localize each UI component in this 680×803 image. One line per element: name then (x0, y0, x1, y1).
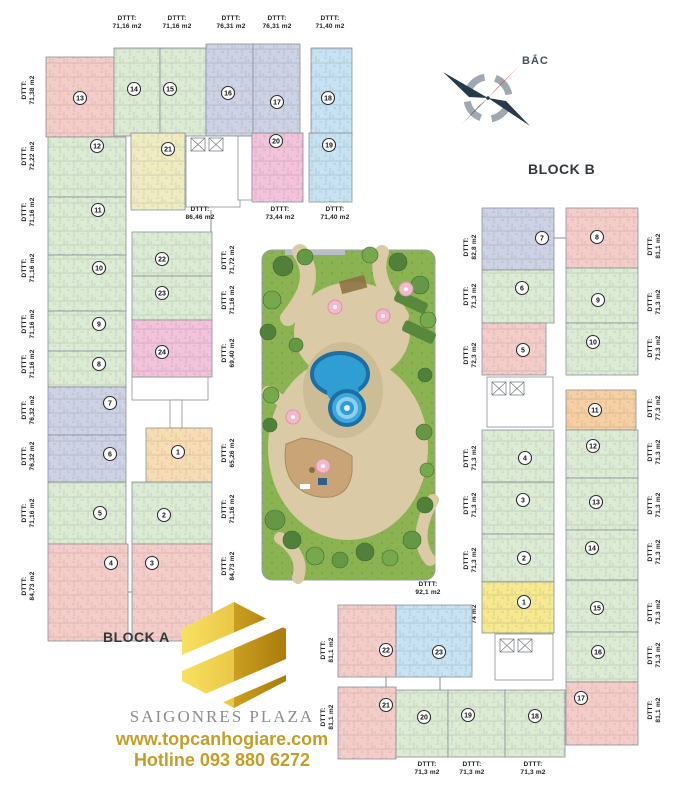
unit-b13: 13DTTT:71,3 m2 (566, 478, 662, 530)
unit-area-label: DTTT:65,26 m2 (221, 438, 236, 467)
unit-area-label: DTTT:86,46 m2 (185, 206, 214, 221)
unit-a22: 22DTTT:71,72 m2 (132, 232, 236, 276)
service-core (495, 634, 553, 680)
unit-number: 1 (522, 599, 526, 606)
unit-floorplan-texture (566, 530, 638, 580)
unit-floorplan-texture (505, 690, 565, 757)
unit-a24: 24DTTT:69,40 m2 (132, 320, 236, 377)
unit-number: 24 (158, 349, 166, 356)
unit-area-label: DTTT:71,3 m2 (463, 492, 478, 517)
unit-b3: 3DTTT:71,3 m2 (463, 482, 554, 534)
unit-number: 20 (272, 138, 280, 145)
unit-a4: 4DTTT:84,73 m2 (21, 544, 128, 641)
unit-area-label: DTTT:71,40 m2 (320, 206, 349, 221)
unit-number: 4 (109, 560, 113, 567)
unit-number: 9 (596, 297, 600, 304)
unit-b17: 17DTTT:81,1 m2 (566, 682, 662, 745)
unit-number: 10 (95, 265, 103, 272)
unit-floorplan-texture (48, 482, 126, 544)
unit-b6: 6DTTT:71,3 m2 (463, 270, 554, 323)
unit-area-label: DTTT:71,3 m2 (647, 289, 662, 314)
unit-area-label: DTTT:71,16 m2 (21, 309, 36, 338)
unit-area-label: DTTT:71,3 m2 (463, 547, 478, 572)
unit-area-label: DTTT:69,40 m2 (221, 338, 236, 367)
unit-number: 5 (98, 510, 102, 517)
unit-number: 19 (464, 712, 472, 719)
brand-name: SAIGONRES PLAZA (102, 707, 342, 727)
unit-area-label: DTTT:71,16 m2 (21, 349, 36, 378)
unit-number: 15 (166, 86, 174, 93)
unit-area-label: DTTT:72,22 m2 (21, 141, 36, 170)
unit-b16: 16DTTT:71,3 m2 (566, 632, 662, 682)
unit-floorplan-texture (132, 276, 212, 320)
unit-number: 19 (325, 142, 333, 149)
service-core (487, 377, 553, 427)
unit-a11: 11DTTT:71,16 m2 (21, 197, 126, 255)
unit-floorplan-texture (448, 690, 505, 757)
brand-website-link: www.topcanhogiare.com (92, 729, 352, 750)
unit-area-label: DTTT:81,1 m2 (647, 233, 662, 258)
unit-floorplan-texture (338, 605, 396, 677)
unit-area-label: DTTT:71,16 m2 (21, 197, 36, 226)
courtyard-illustration (260, 247, 437, 580)
site-plan-svg: 13DTTT:71,38 m214DTTT:71,16 m215DTTT:71,… (0, 0, 680, 803)
unit-a5: 5DTTT:71,16 m2 (21, 482, 126, 544)
unit-number: 4 (523, 455, 527, 462)
block-a-title: BLOCK A (103, 629, 170, 645)
unit-floorplan-texture (48, 311, 126, 351)
unit-number: 22 (382, 647, 390, 654)
unit-floorplan-texture (132, 482, 212, 544)
unit-b8: 8DTTT:81,1 m2 (566, 208, 662, 268)
unit-a7: 7DTTT:76,32 m2 (21, 387, 126, 435)
core-outline (132, 377, 208, 400)
unit-area-label: DTTT:84,73 m2 (21, 571, 36, 600)
unit-number: 11 (94, 207, 102, 214)
unit-a9: 9DTTT:71,16 m2 (21, 309, 126, 351)
unit-number: 20 (420, 714, 428, 721)
unit-b5: 5DTTT:72,3 m2 (463, 323, 546, 375)
unit-number: 22 (158, 256, 166, 263)
unit-floorplan-texture (131, 133, 185, 210)
unit-b22: 22DTTT:81,1 m2 (320, 605, 396, 677)
unit-area-label: DTTT:82,8 m2 (463, 234, 478, 259)
unit-a12: 12DTTT:72,22 m2 (21, 137, 126, 197)
unit-number: 11 (591, 407, 599, 414)
unit-number: 18 (324, 95, 332, 102)
unit-a10: 10DTTT:71,16 m2 (21, 253, 126, 311)
unit-area-label: DTTT:71,72 m2 (221, 245, 236, 274)
unit-b1: 1DTTT:74 m2 (463, 582, 554, 633)
unit-number: 8 (97, 361, 101, 368)
unit-area-label: DTTT:81,1 m2 (647, 697, 662, 722)
unit-number: 23 (158, 290, 166, 297)
unit-number: 12 (589, 443, 597, 450)
unit-area-label: DTTT:72,3 m2 (463, 342, 478, 367)
unit-number: 14 (130, 86, 138, 93)
unit-number: 21 (382, 702, 390, 709)
unit-area-label: DTTT:71,38 m2 (21, 75, 36, 104)
unit-area-label: DTTT:71,16 m2 (162, 15, 191, 30)
core-outline (238, 136, 252, 200)
unit-b19: 19DTTT:71,3 m2 (448, 690, 505, 776)
unit-area-label: DTTT:71,3 m2 (459, 761, 484, 776)
unit-number: 2 (522, 555, 526, 562)
unit-area-label: DTTT:71,3 m2 (647, 335, 662, 360)
unit-floorplan-texture (48, 387, 126, 435)
unit-area-label: DTTT:71,3 m2 (414, 761, 439, 776)
unit-number: 5 (521, 347, 525, 354)
unit-b9: 9DTTT:71,3 m2 (566, 268, 662, 323)
compass-center (486, 96, 490, 100)
unit-area-label: DTTT:71,16 m2 (221, 494, 236, 523)
unit-area-label: DTTT:71,16 m2 (21, 253, 36, 282)
unit-a1: 1DTTT:65,26 m2 (146, 428, 236, 482)
unit-a17: 17DTTT:76,31 m2 (253, 15, 300, 136)
unit-b11: 11DTTT:77,3 m2 (566, 390, 662, 430)
compass-north-label: BẮC (522, 54, 549, 67)
brand-hotline: Hotline 093 880 6272 (92, 750, 352, 771)
unit-number: 13 (592, 499, 600, 506)
unit-b20: 20DTTT:71,3 m2 (396, 690, 448, 776)
unit-number: 3 (521, 497, 525, 504)
unit-area-label: DTTT:71,3 m2 (647, 539, 662, 564)
unit-number: 12 (93, 143, 101, 150)
service-core (132, 377, 208, 400)
unit-area-label: DTTT:71,40 m2 (315, 15, 344, 30)
unit-number: 7 (540, 235, 544, 242)
unit-floorplan-texture (396, 605, 472, 677)
unit-number: 15 (593, 605, 601, 612)
unit-number: 6 (108, 451, 112, 458)
unit-number: 14 (588, 545, 596, 552)
unit-area-label: DTTT:81,1 m2 (320, 637, 335, 662)
unit-number: 2 (162, 512, 166, 519)
unit-area-label: DTTT:71,3 m2 (647, 492, 662, 517)
unit-number: 17 (273, 99, 281, 106)
unit-number: 18 (531, 713, 539, 720)
unit-area-label: DTTT:71,3 m2 (647, 599, 662, 624)
unit-a18: 18DTTT:71,40 m2 (311, 15, 352, 136)
unit-floorplan-texture (48, 137, 126, 197)
unit-number: 16 (594, 649, 602, 656)
unit-floorplan-texture (482, 582, 554, 633)
unit-floorplan-texture (482, 482, 554, 534)
unit-area-label: DTTT:76,32 m2 (21, 441, 36, 470)
unit-area-label: DTTT:76,31 m2 (216, 15, 245, 30)
unit-area-label: DTTT:71,3 m2 (463, 445, 478, 470)
unit-number: 7 (108, 400, 112, 407)
compass-blade-southeast (488, 98, 530, 126)
unit-area-label: DTTT:76,31 m2 (262, 15, 291, 30)
unit-floorplan-texture (48, 197, 126, 255)
unit-a23: 23DTTT:71,16 m2 (132, 276, 236, 320)
unit-number: 23 (435, 649, 443, 656)
unit-floorplan-texture (566, 430, 638, 478)
unit-area-label: DTTT:71,16 m2 (112, 15, 141, 30)
unit-a8: 8DTTT:71,16 m2 (21, 349, 126, 387)
unit-area-label: DTTT:71,3 m2 (647, 439, 662, 464)
unit-floorplan-texture (253, 44, 300, 136)
unit-number: 1 (176, 449, 180, 456)
unit-area-label: DTTT:76,32 m2 (21, 395, 36, 424)
unit-area-label: DTTT:71,3 m2 (647, 642, 662, 667)
unit-number: 8 (595, 234, 599, 241)
unit-number: 10 (589, 339, 597, 346)
unit-floorplan-texture (566, 323, 638, 375)
unit-a13: 13DTTT:71,38 m2 (21, 57, 114, 137)
floorplan-poster: 13DTTT:71,38 m214DTTT:71,16 m215DTTT:71,… (0, 0, 680, 803)
unit-floorplan-texture (482, 430, 554, 482)
unit-b4: 4DTTT:71,3 m2 (463, 430, 554, 482)
unit-a2: 2DTTT:71,16 m2 (132, 482, 236, 544)
unit-b14: 14DTTT:71,3 m2 (566, 530, 662, 580)
unit-b7: 7DTTT:82,8 m2 (463, 208, 554, 270)
service-core (170, 400, 182, 428)
unit-a15: 15DTTT:71,16 m2 (160, 15, 206, 136)
block-b-title: BLOCK B (528, 161, 595, 177)
compass-north-needle-icon (488, 64, 521, 98)
unit-area-label: DTTT:92,1 m2 (415, 581, 440, 596)
unit-a14: 14DTTT:71,16 m2 (112, 15, 160, 136)
unit-b23: 23DTTT:92,1 m2 (396, 581, 472, 677)
core-outline (170, 400, 182, 428)
unit-a6: 6DTTT:76,32 m2 (21, 435, 126, 482)
unit-number: 13 (76, 95, 84, 102)
unit-b2: 2DTTT:71,3 m2 (463, 534, 554, 582)
unit-area-label: DTTT:71,3 m2 (520, 761, 545, 776)
service-core (186, 133, 240, 207)
unit-b12: 12DTTT:71,3 m2 (566, 430, 662, 478)
unit-number: 16 (224, 90, 232, 97)
unit-floorplan-texture (132, 232, 212, 276)
unit-area-label: DTTT:77,3 m2 (647, 395, 662, 420)
unit-area-label: DTTT:71,16 m2 (221, 285, 236, 314)
unit-number: 17 (577, 695, 585, 702)
unit-a16: 16DTTT:76,31 m2 (206, 15, 253, 136)
unit-floorplan-texture (48, 255, 126, 311)
unit-area-label: DTTT:71,3 m2 (463, 283, 478, 308)
swimming-pool (303, 342, 383, 438)
unit-b18: 18DTTT:71,3 m2 (505, 690, 565, 776)
unit-floorplan-texture (132, 320, 212, 377)
unit-number: 6 (520, 285, 524, 292)
compass-rose: BẮC (443, 54, 549, 126)
unit-area-label: DTTT:71,16 m2 (21, 498, 36, 527)
unit-a20: 20DTTT:73,44 m2 (252, 133, 303, 221)
unit-b15: 15DTTT:71,3 m2 (566, 580, 662, 632)
unit-number: 21 (164, 146, 172, 153)
service-core (238, 136, 252, 200)
unit-number: 3 (150, 560, 154, 567)
unit-floorplan-texture (48, 351, 126, 387)
unit-floorplan-texture (482, 323, 546, 375)
unit-floorplan-texture (566, 682, 638, 745)
unit-floorplan-texture (482, 270, 554, 323)
unit-number: 9 (97, 321, 101, 328)
unit-area-label: DTTT:84,73 m2 (221, 551, 236, 580)
unit-b10: 10DTTT:71,3 m2 (566, 323, 662, 375)
unit-area-label: DTTT:73,44 m2 (265, 206, 294, 221)
unit-a19: 19DTTT:71,40 m2 (309, 133, 352, 221)
